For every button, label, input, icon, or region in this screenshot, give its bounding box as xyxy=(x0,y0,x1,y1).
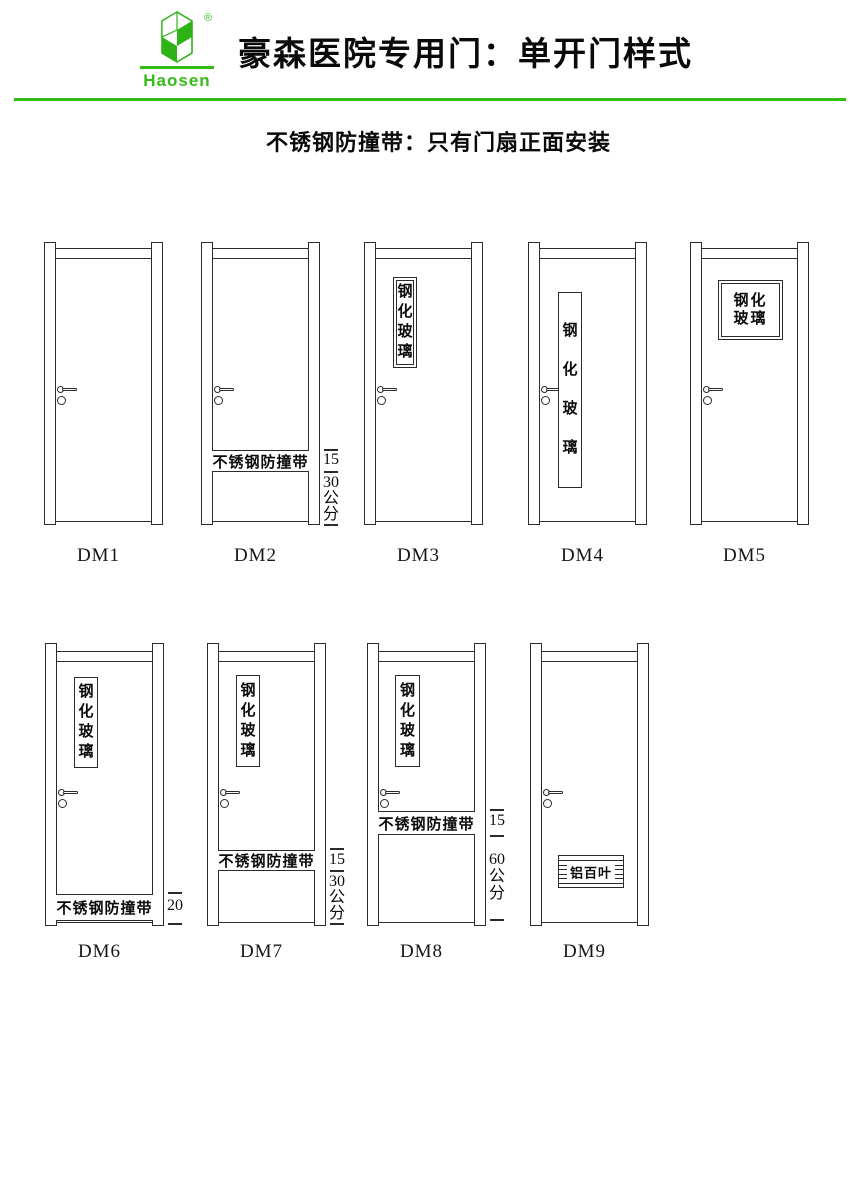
dimension-text: 30 xyxy=(328,874,346,890)
dimension-text: 15 xyxy=(322,452,340,468)
bump-strip-band: 不锈钢防撞带 xyxy=(56,894,153,921)
glass-label: 钢化玻璃 xyxy=(394,278,416,367)
glass-label-char: 钢 xyxy=(397,285,412,300)
glass-label-char: 璃 xyxy=(562,441,577,456)
dimension-tick xyxy=(324,471,338,473)
door-handle-lock-icon xyxy=(541,396,550,405)
door-DM1 xyxy=(44,242,163,525)
dimension-text: 分 xyxy=(488,886,506,902)
door-handle-lock-icon xyxy=(220,799,229,808)
dimension-tick xyxy=(324,524,338,526)
door-jamb-right xyxy=(471,242,483,525)
dimension-text: 公 xyxy=(488,869,506,885)
door-diagrams: DM1不锈钢防撞带DM21530公分钢化玻璃DM3钢化玻璃DM4钢化玻璃DM5钢… xyxy=(0,0,850,1202)
door-jamb-right xyxy=(308,242,320,525)
glass-label: 钢化玻璃 xyxy=(559,293,581,487)
glass-window: 钢化玻璃 xyxy=(393,277,417,368)
dimension-text: 公 xyxy=(322,491,340,507)
bump-strip-band: 不锈钢防撞带 xyxy=(378,811,475,835)
louver-panel: 铝百叶 xyxy=(558,855,624,888)
door-handle-lever-icon xyxy=(62,388,77,391)
door-DM7: 钢化玻璃不锈钢防撞带 xyxy=(207,643,326,926)
glass-label-char: 化 xyxy=(240,704,255,719)
door-handle-lever-icon xyxy=(385,791,400,794)
door-label-DM1: DM1 xyxy=(39,545,158,567)
door-label-DM2: DM2 xyxy=(196,545,315,567)
door-DM8: 钢化玻璃不锈钢防撞带 xyxy=(367,643,486,926)
door-jamb-right xyxy=(151,242,163,525)
glass-label-char: 钢 xyxy=(562,324,577,339)
glass-label-line: 玻璃 xyxy=(733,312,767,327)
dimension-tick xyxy=(330,923,344,925)
door-label-DM3: DM3 xyxy=(359,545,478,567)
glass-label-char: 璃 xyxy=(78,745,93,760)
glass-label-char: 化 xyxy=(78,705,93,720)
louver-slat xyxy=(559,860,623,861)
louver-slat xyxy=(559,883,623,884)
dimension-text: 分 xyxy=(322,507,340,523)
glass-label-char: 钢 xyxy=(240,684,255,699)
door-DM2: 不锈钢防撞带 xyxy=(201,242,320,525)
glass-label: 钢化玻璃 xyxy=(75,678,97,767)
dimension-tick xyxy=(330,870,344,872)
dimension-text: 60 xyxy=(488,852,506,868)
door-handle-lock-icon xyxy=(58,799,67,808)
dimension-tick xyxy=(330,848,344,850)
louver-label: 铝百叶 xyxy=(567,862,615,881)
dimension-tick xyxy=(490,835,504,837)
dimension-text: 15 xyxy=(328,852,346,868)
glass-label-char: 玻 xyxy=(397,325,412,340)
door-handle-lever-icon xyxy=(219,388,234,391)
glass-label-char: 化 xyxy=(397,305,412,320)
door-handle-lock-icon xyxy=(377,396,386,405)
dimension-text: 20 xyxy=(166,898,184,914)
door-handle-lever-icon xyxy=(548,791,563,794)
door-label-DM4: DM4 xyxy=(523,545,642,567)
glass-label-char: 钢 xyxy=(400,684,415,699)
glass-label-char: 玻 xyxy=(240,724,255,739)
glass-label: 钢化玻璃 xyxy=(237,676,259,766)
door-DM4: 钢化玻璃 xyxy=(528,242,647,525)
door-DM3: 钢化玻璃 xyxy=(364,242,483,525)
dimension-text: 15 xyxy=(488,813,506,829)
door-handle-lock-icon xyxy=(57,396,66,405)
glass-label-char: 化 xyxy=(562,363,577,378)
page: ® Haosen 豪森医院专用门：单开门样式 不锈钢防撞带：只有门扇正面安装 D… xyxy=(0,0,850,1202)
door-handle-lever-icon xyxy=(63,791,78,794)
door-jamb-right xyxy=(797,242,809,525)
door-label-DM5: DM5 xyxy=(685,545,804,567)
bump-strip-band: 不锈钢防撞带 xyxy=(218,850,315,871)
door-jamb-right xyxy=(637,643,649,926)
dimension-text: 分 xyxy=(328,906,346,922)
door-handle-lock-icon xyxy=(703,396,712,405)
door-DM6: 钢化玻璃不锈钢防撞带 xyxy=(45,643,164,926)
door-label-DM6: DM6 xyxy=(40,941,159,963)
glass-label-char: 化 xyxy=(400,704,415,719)
door-handle-lock-icon xyxy=(543,799,552,808)
door-handle-lever-icon xyxy=(382,388,397,391)
bump-strip-band: 不锈钢防撞带 xyxy=(212,450,309,472)
door-jamb-right xyxy=(635,242,647,525)
dimension-tick xyxy=(168,923,182,925)
door-handle-lever-icon xyxy=(708,388,723,391)
glass-window: 钢化玻璃 xyxy=(718,280,783,340)
glass-window: 钢化玻璃 xyxy=(558,292,582,488)
dimension-text: 公 xyxy=(328,890,346,906)
glass-label-char: 璃 xyxy=(397,345,412,360)
door-label-DM7: DM7 xyxy=(202,941,321,963)
door-label-DM9: DM9 xyxy=(525,941,644,963)
glass-window: 钢化玻璃 xyxy=(395,675,420,767)
glass-label-line: 钢化 xyxy=(733,294,767,309)
door-label-DM8: DM8 xyxy=(362,941,481,963)
glass-label-char: 玻 xyxy=(78,725,93,740)
door-handle-lever-icon xyxy=(225,791,240,794)
door-handle-lock-icon xyxy=(380,799,389,808)
glass-label-char: 玻 xyxy=(400,724,415,739)
glass-label-char: 璃 xyxy=(400,744,415,759)
dimension-tick xyxy=(168,892,182,894)
door-jamb-right xyxy=(152,643,164,926)
door-jamb-right xyxy=(314,643,326,926)
dimension-tick xyxy=(490,919,504,921)
door-handle-lock-icon xyxy=(214,396,223,405)
glass-window: 钢化玻璃 xyxy=(74,677,98,768)
dimension-tick xyxy=(490,809,504,811)
door-DM9: 铝百叶 xyxy=(530,643,649,926)
glass-label-char: 璃 xyxy=(240,744,255,759)
glass-label-char: 玻 xyxy=(562,402,577,417)
door-DM5: 钢化玻璃 xyxy=(690,242,809,525)
glass-label: 钢化玻璃 xyxy=(719,281,782,339)
glass-window: 钢化玻璃 xyxy=(236,675,260,767)
glass-label-char: 钢 xyxy=(78,685,93,700)
door-jamb-right xyxy=(474,643,486,926)
dimension-text: 30 xyxy=(322,475,340,491)
glass-label: 钢化玻璃 xyxy=(396,676,419,766)
